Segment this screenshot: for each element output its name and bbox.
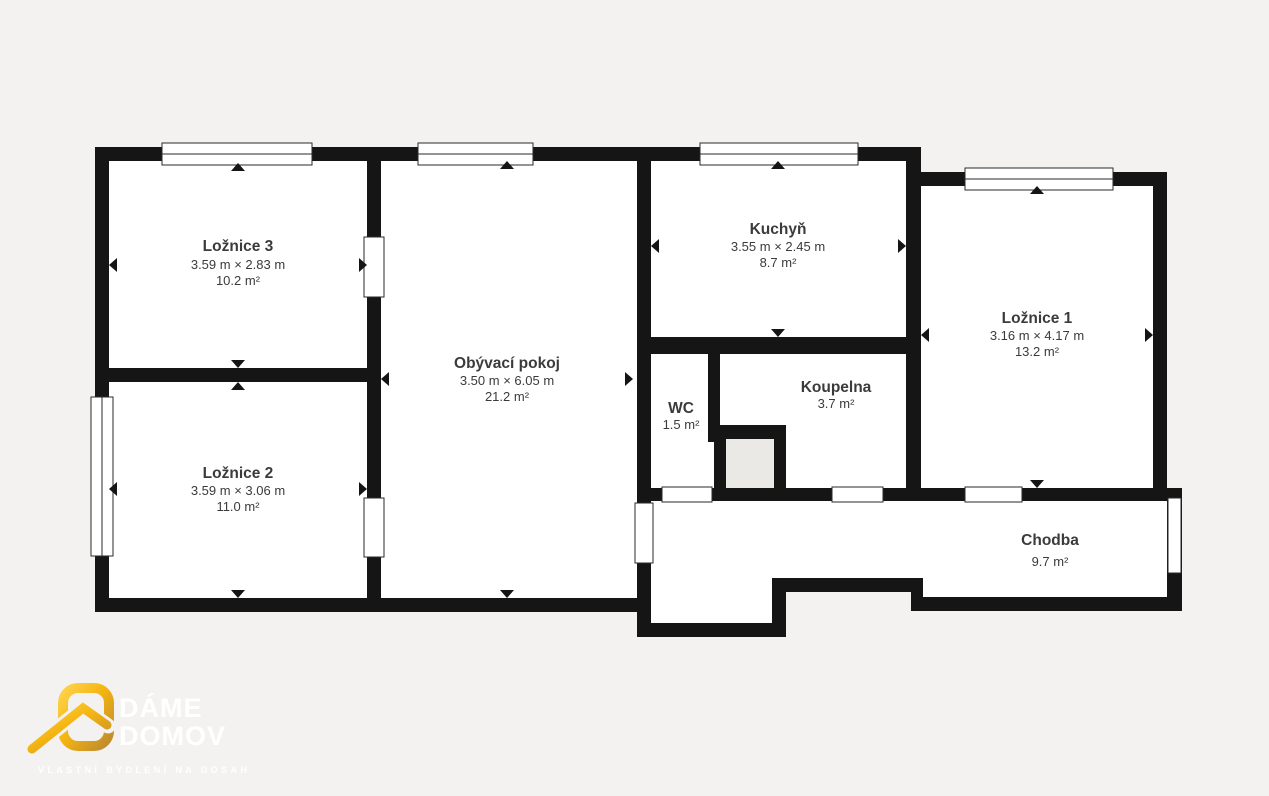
door-loznice3 (364, 237, 384, 297)
door-loznice2 (364, 498, 384, 557)
brand-line1: DÁME (119, 692, 203, 723)
brand-line2: DOMOV (119, 721, 226, 751)
wall-chodba-right-bottom (911, 597, 1182, 611)
room-koupelna-area: 3.7 m² (818, 396, 856, 411)
wall-kuchyn-loznice1 (906, 147, 921, 501)
wall-loznice3-loznice2 (95, 368, 381, 382)
window-loznice2 (91, 397, 113, 556)
house-icon (32, 688, 109, 749)
window-loznice1 (965, 168, 1113, 190)
door-loznice1 (965, 487, 1022, 502)
room-wc-name: WC (668, 400, 694, 417)
wall-chodba-step (911, 583, 923, 611)
entry-door (1168, 498, 1181, 573)
room-loznice3-name: Ložnice 3 (203, 238, 274, 255)
door-wc (662, 487, 712, 502)
room-loznice1-area: 13.2 m² (1015, 344, 1060, 359)
door-koupelna (832, 487, 883, 502)
room-loznice2-name: Ložnice 2 (203, 465, 274, 482)
room-loznice1-dims: 3.16 m × 4.17 m (990, 328, 1084, 343)
room-obyvaci-area: 21.2 m² (485, 389, 530, 404)
utility-shaft (726, 439, 774, 488)
room-loznice1-name: Ložnice 1 (1002, 310, 1073, 327)
window-loznice3 (162, 143, 312, 165)
wall-chodba-ext-bottom (637, 623, 786, 637)
wall-chodba-ext-right (772, 578, 786, 637)
door-obyvaci-chodba (635, 503, 653, 563)
room-kuchyn-name: Kuchyň (750, 221, 807, 238)
room-loznice2-area: 11.0 m² (216, 499, 260, 514)
dame-domov-logo: DÁME DOMOV VLASTNÍ BYDLENÍ NA DOSAH (25, 662, 275, 787)
room-kuchyn-area: 8.7 m² (760, 255, 798, 270)
room-wc-area: 1.5 m² (663, 417, 701, 432)
room-obyvaci-dims: 3.50 m × 6.05 m (460, 373, 554, 388)
room-loznice2-dims: 3.59 m × 3.06 m (191, 483, 285, 498)
room-loznice3-dims: 3.59 m × 2.83 m (191, 257, 285, 272)
room-loznice3-area: 10.2 m² (216, 273, 261, 288)
wall-kuchyn-bottom (637, 337, 921, 354)
room-koupelna-name: Koupelna (801, 379, 872, 396)
room-kuchyn-dims: 3.55 m × 2.45 m (731, 239, 825, 254)
wall-loznice1-right (1153, 172, 1167, 501)
brand-tagline: VLASTNÍ BYDLENÍ NA DOSAH (38, 765, 250, 775)
room-chodba-area: 9.7 m² (1032, 554, 1070, 569)
room-obyvaci-name: Obývací pokoj (454, 355, 560, 372)
window-obyvaci (418, 143, 533, 165)
wall-chodba-mid-bottom (772, 578, 923, 592)
room-chodba-name: Chodba (1021, 532, 1079, 549)
window-kuchyn (700, 143, 858, 165)
